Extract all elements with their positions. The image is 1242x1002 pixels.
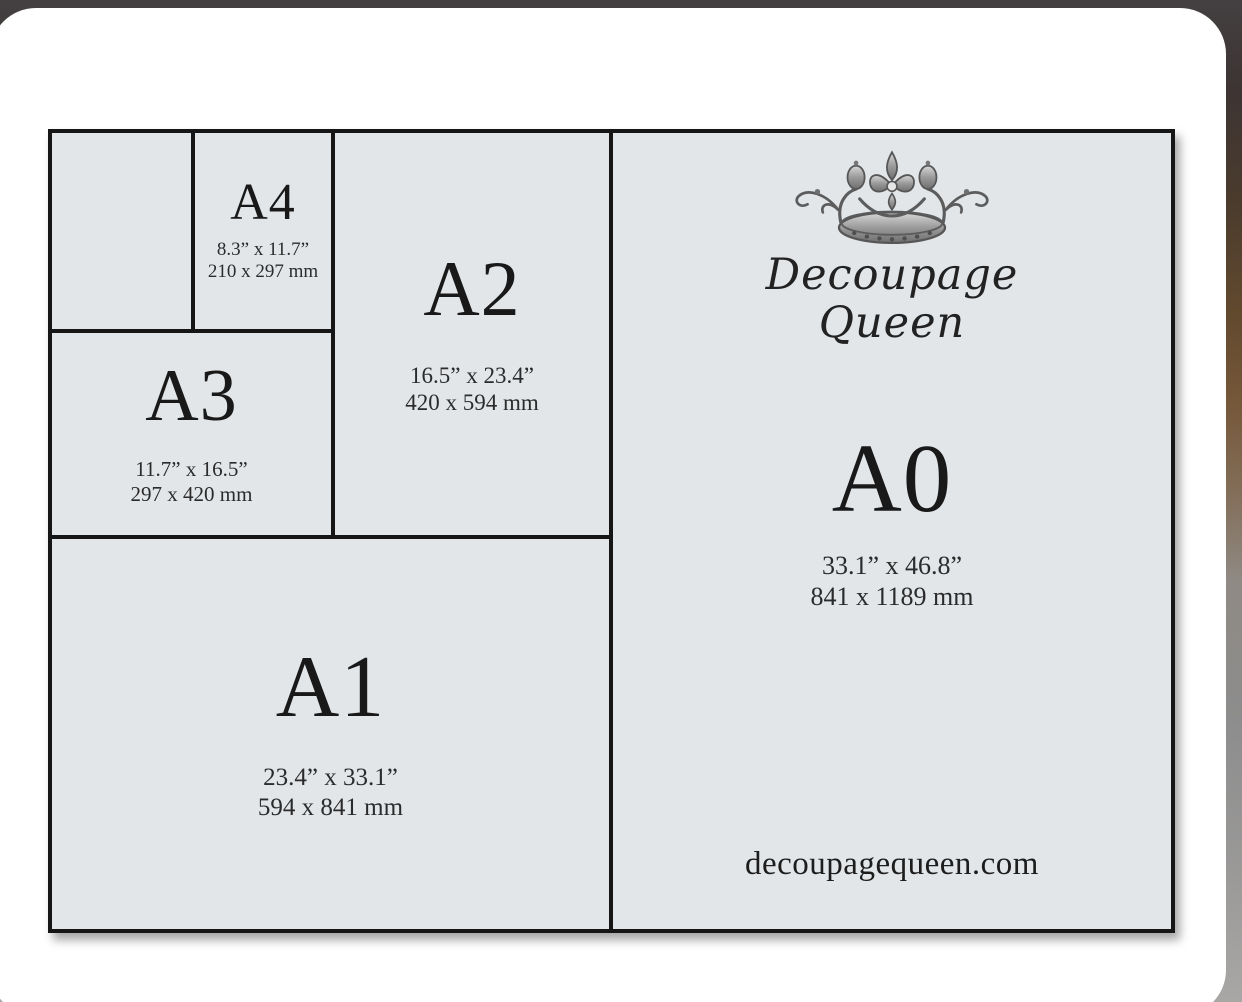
a1-mm: 594 x 841 mm <box>258 793 403 823</box>
a2-label: A2 <box>423 252 520 326</box>
cell-a4: A4 8.3” x 11.7” 210 x 297 mm <box>195 133 331 329</box>
a3-dimensions: 11.7” x 16.5” 297 x 420 mm <box>131 457 253 507</box>
a3-inches: 11.7” x 16.5” <box>131 457 253 482</box>
cell-a3: A3 11.7” x 16.5” 297 x 420 mm <box>52 333 331 535</box>
a0-mm: 841 x 1189 mm <box>811 582 974 613</box>
cell-unlabeled <box>52 133 191 329</box>
a1-inches: 23.4” x 33.1” <box>258 763 403 793</box>
a3-mm: 297 x 420 mm <box>131 482 253 507</box>
a1-dimensions: 23.4” x 33.1” 594 x 841 mm <box>258 763 403 822</box>
cell-a0: Decoupage Queen A0 33.1” x 46.8” 841 x 1… <box>613 133 1171 929</box>
a2-mm: 420 x 594 mm <box>405 389 539 416</box>
a4-inches: 8.3” x 11.7” <box>208 239 318 261</box>
a1-label: A1 <box>276 646 386 730</box>
a4-dimensions: 8.3” x 11.7” 210 x 297 mm <box>208 239 318 284</box>
paper-size-diagram: A4 8.3” x 11.7” 210 x 297 mm A2 16.5” x … <box>48 129 1175 933</box>
a3-label: A3 <box>145 361 237 431</box>
cell-a1: A1 23.4” x 33.1” 594 x 841 mm <box>52 539 609 929</box>
a4-mm: 210 x 297 mm <box>208 261 318 283</box>
a2-dimensions: 16.5” x 23.4” 420 x 594 mm <box>405 362 539 416</box>
crown-icon <box>784 145 1000 251</box>
brand-name-line1: Decoupage <box>766 251 1019 299</box>
a0-block: A0 33.1” x 46.8” 841 x 1189 mm <box>811 433 974 612</box>
page-background: A4 8.3” x 11.7” 210 x 297 mm A2 16.5” x … <box>0 0 1242 1002</box>
website-text: decoupagequeen.com <box>745 846 1039 883</box>
a4-label: A4 <box>230 178 296 227</box>
a0-dimensions: 33.1” x 46.8” 841 x 1189 mm <box>811 551 974 612</box>
a0-inches: 33.1” x 46.8” <box>811 551 974 582</box>
brand-name-line2: Queen <box>819 299 966 347</box>
a2-inches: 16.5” x 23.4” <box>405 362 539 389</box>
cell-a2: A2 16.5” x 23.4” 420 x 594 mm <box>335 133 609 535</box>
a0-label: A0 <box>811 433 974 525</box>
